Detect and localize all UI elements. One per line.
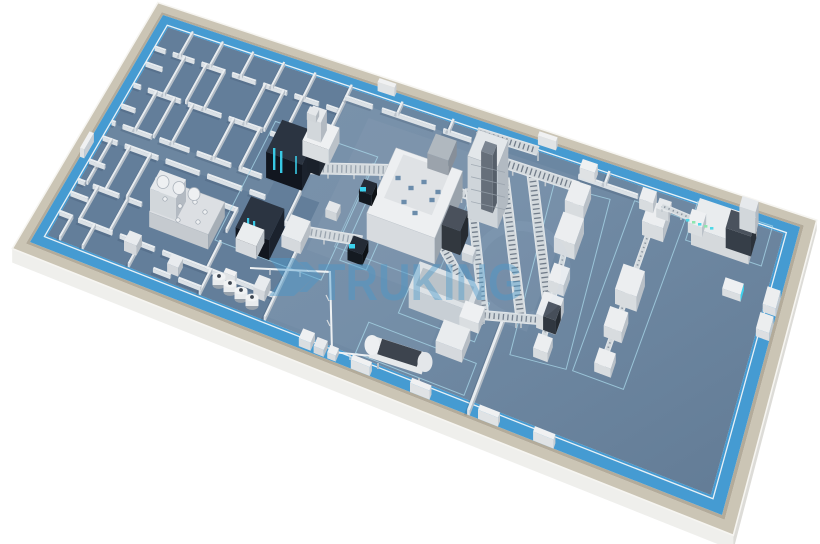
svg-text:TRUKING: TRUKING (318, 254, 523, 312)
